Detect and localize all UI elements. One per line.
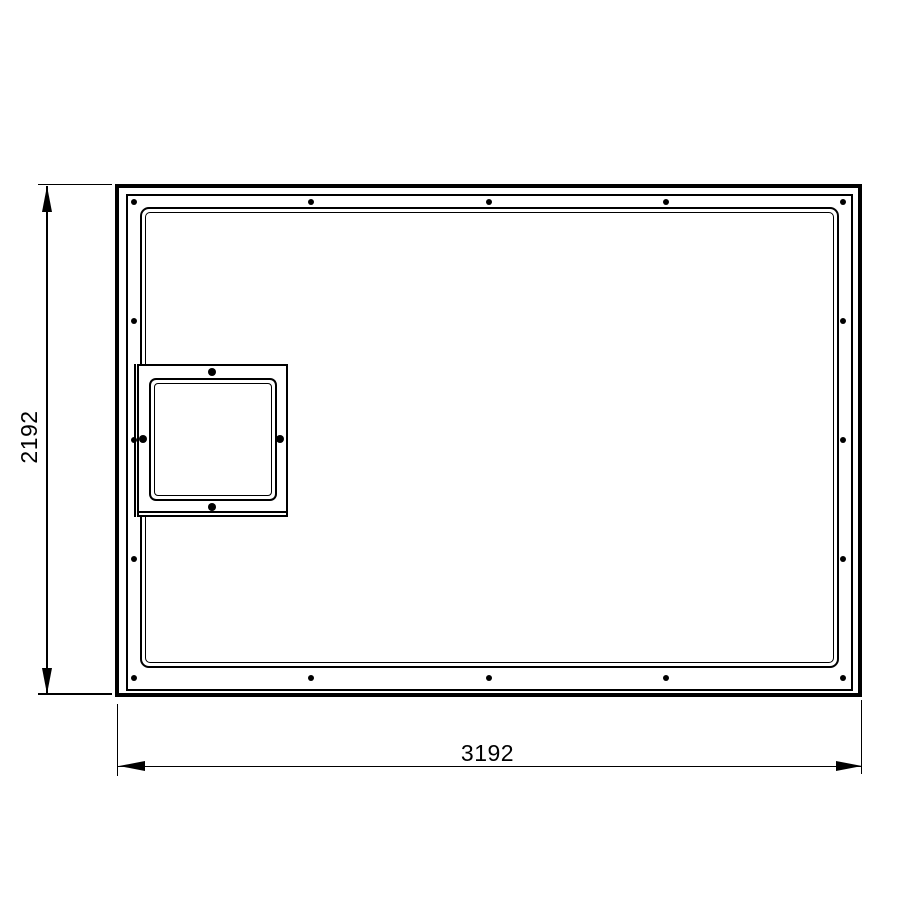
drawing-canvas: 2192 3192	[0, 0, 920, 920]
panel-screw-dot	[208, 368, 216, 376]
frame-screw-dot	[486, 675, 492, 681]
height-dimension-arrow-down-icon	[42, 668, 52, 694]
frame-screw-dot	[663, 675, 669, 681]
height-dimension-line	[46, 186, 48, 693]
frame-screw-dot	[131, 437, 137, 443]
panel-screw-dot	[276, 435, 284, 443]
access-panel-opening-inner-line	[154, 383, 272, 496]
height-dimension-extension-bottom	[38, 693, 112, 695]
width-dimension-arrow-right-icon	[836, 761, 862, 771]
frame-screw-dot	[840, 556, 846, 562]
frame-screw-dot	[131, 318, 137, 324]
access-panel-bottom-profile-line	[137, 511, 288, 513]
frame-screw-dot	[663, 199, 669, 205]
frame-screw-dot	[131, 556, 137, 562]
panel-screw-dot	[208, 503, 216, 511]
panel-screw-dot	[139, 435, 147, 443]
height-dimension-label: 2192	[17, 377, 41, 497]
frame-screw-dot	[131, 199, 137, 205]
width-dimension-arrow-left-icon	[119, 761, 145, 771]
height-dimension-arrow-up-icon	[42, 186, 52, 212]
frame-screw-dot	[840, 199, 846, 205]
frame-screw-dot	[131, 675, 137, 681]
frame-screw-dot	[486, 199, 492, 205]
frame-screw-dot	[308, 199, 314, 205]
width-dimension-label: 3192	[428, 741, 548, 765]
